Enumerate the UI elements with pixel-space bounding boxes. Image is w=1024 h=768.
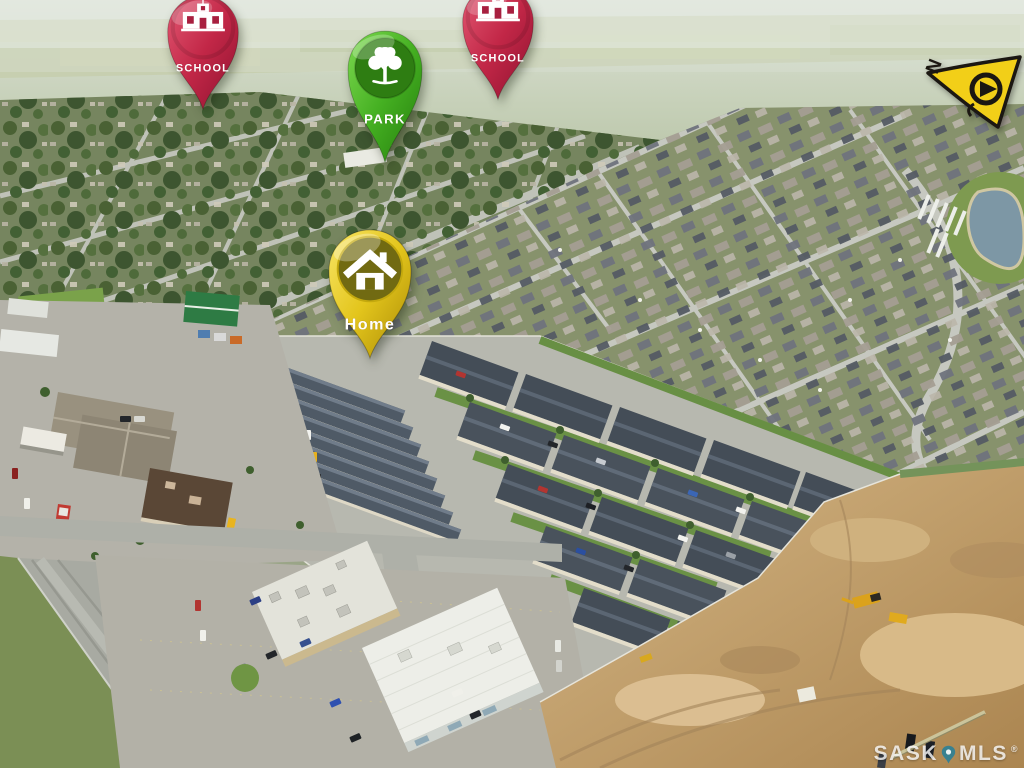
marker-school-west: SCHOOL xyxy=(161,0,245,112)
watermark-prefix: SASK xyxy=(874,742,938,766)
registered-trademark-symbol: ® xyxy=(1011,744,1019,754)
aerial-listing-photo: SCHOOL PARK xyxy=(0,0,1024,768)
marker-home: Home xyxy=(321,224,419,361)
school-building-icon xyxy=(476,0,520,21)
watermark-suffix: MLS xyxy=(959,742,1008,766)
marker-school-east: SCHOOL xyxy=(456,0,540,102)
north-compass-logo: N xyxy=(924,50,1024,136)
marker-park: PARK xyxy=(341,24,429,165)
marker-label: SCHOOL xyxy=(471,53,525,65)
map-pin-icon xyxy=(941,745,956,764)
marker-label: Home xyxy=(345,316,396,334)
sask-mls-watermark: SASK MLS ® xyxy=(874,742,1019,766)
green-roof-shed xyxy=(183,291,239,327)
aerial-photo-background xyxy=(0,0,1024,768)
marker-label: PARK xyxy=(364,112,406,127)
marker-label: SCHOOL xyxy=(176,63,230,75)
